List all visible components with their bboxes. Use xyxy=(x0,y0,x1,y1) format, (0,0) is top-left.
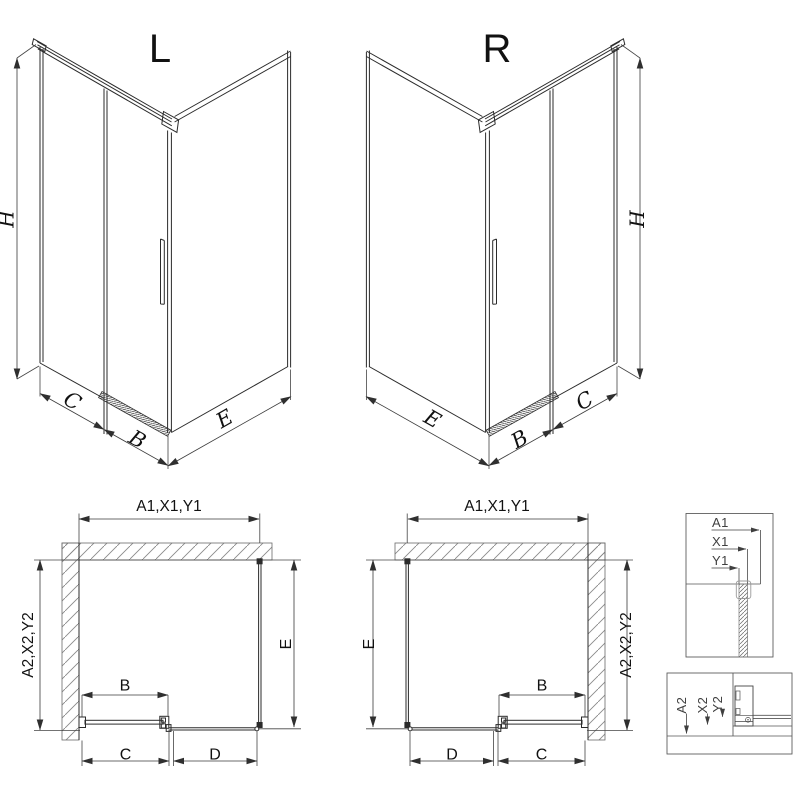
dim-label-h: H xyxy=(625,210,649,229)
dim-label-depth: A2,X2,Y2 xyxy=(20,612,37,678)
dim-label-c: C xyxy=(536,747,548,764)
dim-label-b: B xyxy=(506,425,532,454)
side-glass-panel xyxy=(404,558,410,728)
detail-label-x2: X2 xyxy=(695,697,710,714)
dim-label-depth: A2,X2,Y2 xyxy=(618,612,635,678)
detail-label-y2: Y2 xyxy=(710,696,725,713)
leader-lines xyxy=(687,713,723,734)
wall-profile-section xyxy=(735,686,753,726)
detail-box-bottom: A2 X2 Y2 xyxy=(667,673,792,754)
sliding-door xyxy=(79,716,169,728)
detail-label-a1: A1 xyxy=(712,515,729,530)
walls xyxy=(395,543,605,740)
dim-label-d: D xyxy=(209,747,221,764)
technical-drawing-page: L H C B E R H C B E xyxy=(0,0,800,800)
dim-label-b: B xyxy=(124,425,150,454)
dim-label-c: C xyxy=(120,747,132,764)
detail-label-a2: A2 xyxy=(674,697,689,714)
dim-label-e: E xyxy=(361,639,378,650)
view-3d-left: L H C B E xyxy=(0,27,291,469)
detail-box-top: A1 X1 Y1 xyxy=(686,514,773,658)
dim-label-width: A1,X1,Y1 xyxy=(136,498,202,515)
side-glass-panel xyxy=(257,558,263,728)
dim-label-b: B xyxy=(120,678,131,695)
plan-view-left: A1,X1,Y1 A2,X2,Y2 E B C D xyxy=(20,498,301,766)
dim-label-d: D xyxy=(446,747,458,764)
view-3d-right: R H C B E xyxy=(366,27,649,469)
dim-label-b: B xyxy=(537,678,548,695)
view-title-left: L xyxy=(149,27,171,71)
dim-label-c: C xyxy=(572,386,598,415)
plan-view-right: A1,X1,Y1 A2,X2,Y2 E B D C xyxy=(361,498,635,766)
walls xyxy=(62,543,272,740)
dim-label-width: A1,X1,Y1 xyxy=(464,498,530,515)
detail-label-y1: Y1 xyxy=(712,553,729,568)
dim-label-h: H xyxy=(0,210,19,229)
fixed-front-panel xyxy=(408,725,501,732)
dim-label-c: C xyxy=(60,386,86,415)
sliding-door xyxy=(498,716,588,728)
fixed-front-panel xyxy=(166,725,259,732)
detail-label-x1: X1 xyxy=(712,534,729,549)
view-title-right: R xyxy=(483,27,512,71)
shower-enclosure-drawing: L H C B E R H C B E xyxy=(0,0,800,800)
dim-label-e: E xyxy=(278,639,295,650)
